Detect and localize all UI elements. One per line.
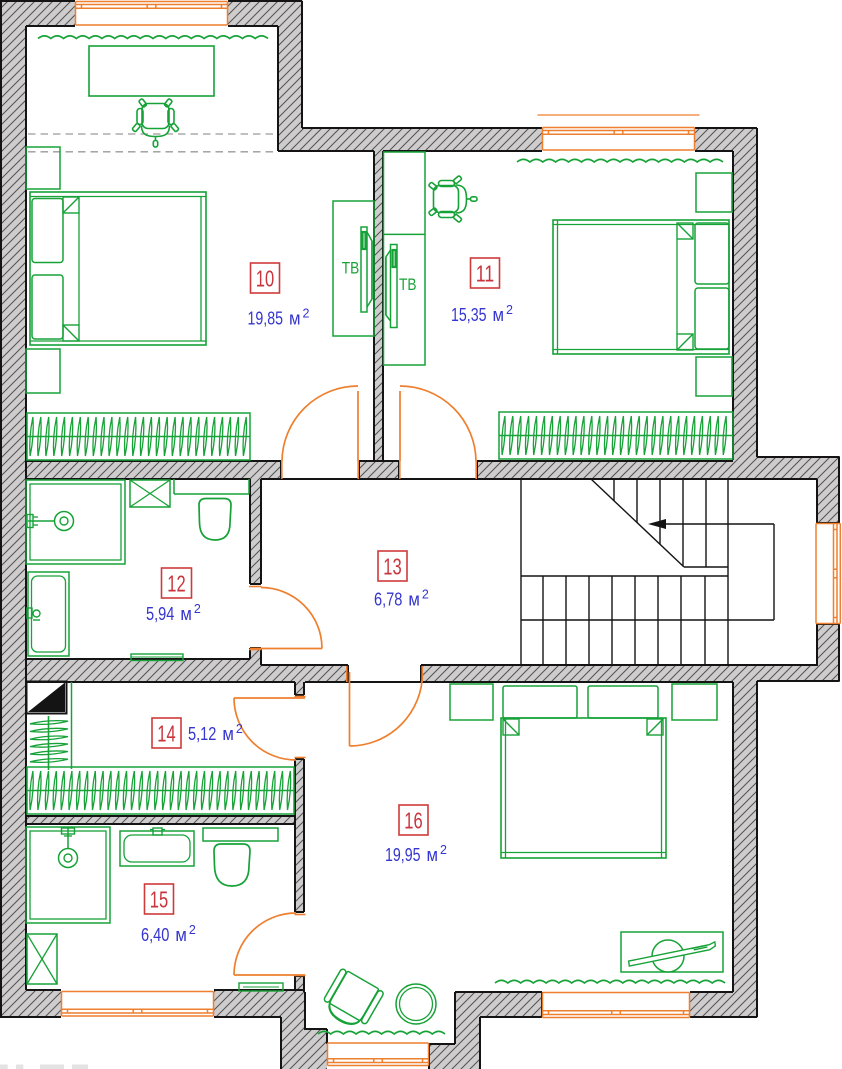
svg-text:м: м	[175, 925, 187, 945]
svg-text:м: м	[222, 724, 234, 744]
svg-text:2: 2	[440, 843, 447, 857]
svg-text:2: 2	[506, 303, 513, 317]
svg-text:м: м	[493, 305, 505, 325]
svg-text:19,85: 19,85	[248, 309, 284, 329]
svg-text:м: м	[289, 309, 301, 329]
svg-text:12: 12	[167, 571, 185, 597]
svg-text:11: 11	[476, 261, 494, 287]
svg-text:6,78: 6,78	[374, 590, 402, 610]
svg-text:2: 2	[303, 307, 310, 321]
svg-text:ТВ: ТВ	[342, 260, 360, 278]
svg-text:13: 13	[383, 554, 401, 580]
svg-text:6,40: 6,40	[141, 925, 169, 945]
svg-text:2: 2	[422, 588, 429, 602]
svg-text:2: 2	[194, 602, 201, 616]
svg-text:м: м	[180, 604, 192, 624]
svg-text:ТВ: ТВ	[399, 276, 417, 294]
svg-text:м: м	[427, 845, 439, 865]
svg-text:15,35: 15,35	[451, 305, 487, 325]
svg-text:5,94: 5,94	[146, 604, 174, 624]
svg-text:м: м	[408, 590, 420, 610]
svg-text:14: 14	[157, 721, 176, 747]
svg-text:16: 16	[404, 808, 422, 834]
svg-text:5,12: 5,12	[188, 724, 216, 744]
svg-text:15: 15	[150, 887, 168, 913]
svg-text:10: 10	[256, 266, 274, 292]
svg-text:19,95: 19,95	[385, 845, 421, 865]
svg-text:2: 2	[236, 722, 243, 736]
svg-text:2: 2	[189, 923, 196, 937]
